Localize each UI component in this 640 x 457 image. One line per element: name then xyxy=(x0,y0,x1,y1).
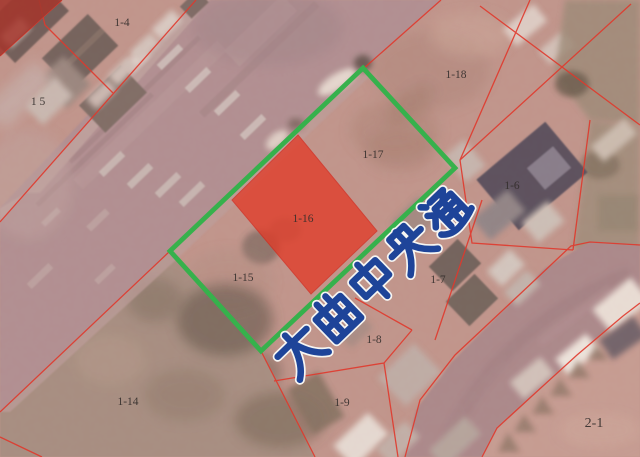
svg-text:1-7: 1-7 xyxy=(430,274,446,286)
svg-text:1-15: 1-15 xyxy=(232,272,253,284)
svg-text:1-4: 1-4 xyxy=(114,17,130,29)
svg-text:1-6: 1-6 xyxy=(504,180,520,192)
svg-text:2-1: 2-1 xyxy=(585,416,604,431)
svg-text:1-14: 1-14 xyxy=(117,396,138,408)
svg-text:1-9: 1-9 xyxy=(334,397,350,409)
svg-text:1-18: 1-18 xyxy=(445,69,466,81)
svg-text:1 5: 1 5 xyxy=(31,96,46,108)
svg-text:1-8: 1-8 xyxy=(366,334,382,346)
svg-text:1-17: 1-17 xyxy=(362,149,383,161)
svg-text:1-16: 1-16 xyxy=(292,213,313,225)
